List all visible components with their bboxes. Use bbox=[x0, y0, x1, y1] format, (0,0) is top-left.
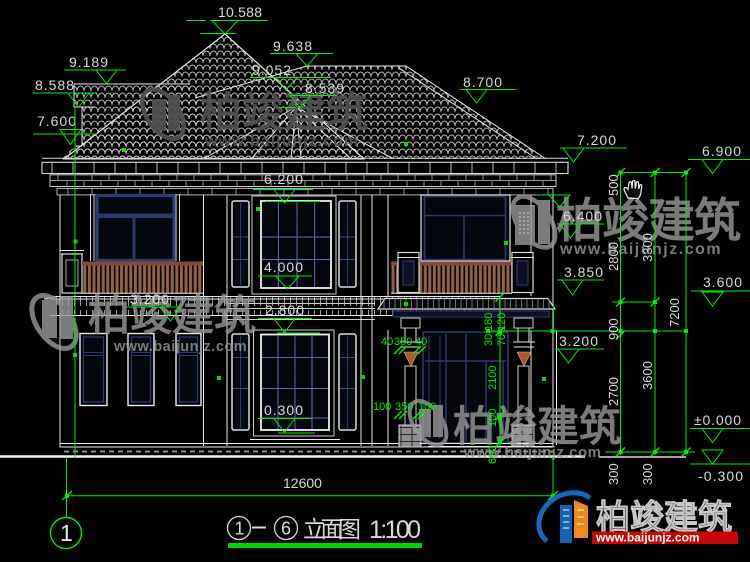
svg-text:900: 900 bbox=[606, 318, 621, 340]
svg-text:300: 300 bbox=[606, 463, 621, 485]
svg-text:6.400: 6.400 bbox=[563, 208, 602, 224]
svg-text:柏竣建筑: 柏竣建筑 bbox=[453, 403, 621, 450]
svg-text:40: 40 bbox=[381, 336, 393, 348]
svg-text:120: 120 bbox=[496, 313, 508, 331]
svg-text:立面图: 立面图 bbox=[303, 516, 361, 542]
svg-text:3300: 3300 bbox=[640, 233, 655, 262]
svg-text:3600: 3600 bbox=[640, 361, 655, 390]
svg-text:2800: 2800 bbox=[606, 242, 621, 271]
svg-text:1:100: 1:100 bbox=[369, 516, 421, 544]
svg-text:1: 1 bbox=[235, 519, 245, 539]
svg-text:6.900: 6.900 bbox=[702, 143, 741, 159]
svg-text:-0.300: -0.300 bbox=[698, 468, 743, 484]
svg-text:7.600: 7.600 bbox=[37, 113, 76, 129]
svg-text:3.200: 3.200 bbox=[130, 291, 169, 307]
svg-text:7200: 7200 bbox=[667, 298, 682, 327]
svg-text:1: 1 bbox=[60, 520, 73, 546]
svg-text:8.539: 8.539 bbox=[305, 80, 344, 96]
svg-text:8.588: 8.588 bbox=[35, 77, 74, 93]
svg-text:www.baijunjz.com: www.baijunjz.com bbox=[463, 444, 601, 461]
svg-text:100: 100 bbox=[373, 401, 391, 413]
svg-text:柏竣建筑: 柏竣建筑 bbox=[88, 292, 256, 339]
svg-text:4.000: 4.000 bbox=[264, 259, 303, 275]
svg-text:6.200: 6.200 bbox=[264, 171, 303, 187]
svg-text:600: 600 bbox=[487, 446, 499, 464]
svg-text:柏竣建筑: 柏竣建筑 bbox=[200, 89, 368, 136]
svg-text:3.200: 3.200 bbox=[559, 333, 598, 349]
svg-text:www.baijunjz.com: www.baijunjz.com bbox=[204, 133, 359, 150]
svg-text:9.638: 9.638 bbox=[273, 38, 312, 54]
svg-text:350: 350 bbox=[395, 401, 413, 413]
svg-text:500: 500 bbox=[606, 174, 621, 196]
svg-text:www.baijunjz.com: www.baijunjz.com bbox=[113, 339, 247, 355]
svg-text:10.588: 10.588 bbox=[218, 4, 262, 20]
svg-text:12600: 12600 bbox=[283, 475, 322, 491]
svg-text:www.baijunjz.com: www.baijunjz.com bbox=[595, 531, 700, 545]
svg-text:3.600: 3.600 bbox=[703, 274, 742, 290]
svg-text:70: 70 bbox=[496, 334, 508, 346]
svg-text:180: 180 bbox=[483, 313, 495, 331]
svg-text:2100: 2100 bbox=[487, 366, 499, 390]
svg-text:±0.000: ±0.000 bbox=[694, 412, 741, 428]
svg-text:9.189: 9.189 bbox=[69, 54, 108, 70]
svg-text:2700: 2700 bbox=[606, 377, 621, 406]
svg-text:2.800: 2.800 bbox=[265, 302, 304, 318]
svg-text:350: 350 bbox=[394, 336, 412, 348]
svg-text:3.850: 3.850 bbox=[564, 264, 603, 280]
svg-text:7.200: 7.200 bbox=[577, 132, 616, 148]
svg-text:0.300: 0.300 bbox=[264, 402, 303, 418]
svg-text:300: 300 bbox=[640, 463, 655, 485]
svg-text:6: 6 bbox=[281, 519, 291, 539]
svg-text:9.052: 9.052 bbox=[252, 62, 291, 78]
svg-text:30: 30 bbox=[483, 334, 495, 346]
svg-text:8.700: 8.700 bbox=[463, 74, 502, 90]
